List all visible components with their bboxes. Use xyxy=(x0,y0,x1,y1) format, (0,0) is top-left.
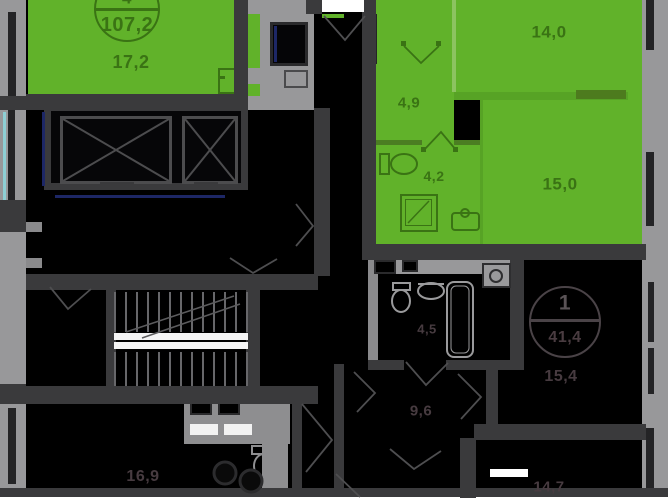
badge-divider xyxy=(95,8,159,11)
window-icon xyxy=(646,0,654,50)
room-second[interactable] xyxy=(482,92,642,244)
wall xyxy=(486,366,498,428)
landing-strip xyxy=(190,424,218,435)
room-label-other-main: 15,4 xyxy=(544,369,577,385)
room-label-second: 15,0 xyxy=(542,176,577,193)
window-glass xyxy=(3,112,6,200)
stair-landing xyxy=(114,333,248,340)
floor-plan: 4 107,2 1 41,4 17,2 14,0 4,9 4,2 15,0 15… xyxy=(0,0,672,500)
wall-stub xyxy=(26,222,42,232)
wall xyxy=(314,108,330,276)
window-icon xyxy=(8,110,15,202)
bath-wall xyxy=(376,140,422,145)
badge-total-area: 41,4 xyxy=(548,330,581,346)
room-label-middle: 9,6 xyxy=(410,404,432,419)
room-label-bottom-right: 14,7 xyxy=(533,480,564,495)
wall xyxy=(306,0,322,14)
badge-total-area: 107,2 xyxy=(101,15,154,35)
fridge-handle xyxy=(218,76,225,79)
elevator-accent xyxy=(42,112,45,186)
wall xyxy=(446,360,514,370)
wall-joint xyxy=(0,384,26,404)
stair-treads-lower xyxy=(114,352,248,386)
badge-divider xyxy=(531,319,599,322)
wall xyxy=(292,396,302,497)
wall xyxy=(0,488,668,497)
wall xyxy=(26,386,318,404)
wall xyxy=(362,0,376,260)
shaft-box-small xyxy=(284,70,308,88)
room-label-hall: 4,9 xyxy=(398,96,420,111)
room-label-bottom-left: 16,9 xyxy=(126,469,159,485)
window-icon xyxy=(646,428,654,490)
window-icon xyxy=(8,12,16,96)
bath-wall xyxy=(454,140,480,145)
green-pilaster xyxy=(246,14,260,68)
room-bedroom[interactable] xyxy=(454,0,642,92)
stair-treads-upper xyxy=(114,292,248,332)
window-icon xyxy=(646,152,654,226)
partition xyxy=(452,0,456,92)
window-icon xyxy=(648,348,654,394)
shaft-box xyxy=(402,260,418,272)
badge-room-count: 1 xyxy=(559,293,571,314)
elevator-cab-large xyxy=(60,116,172,184)
elevator-door xyxy=(100,182,134,190)
elevator-accent-bottom xyxy=(55,195,225,198)
partition-door-gap xyxy=(628,92,642,100)
room-hall[interactable] xyxy=(376,0,454,140)
entrance-door-leaf xyxy=(322,14,344,18)
wall xyxy=(510,258,524,370)
partition xyxy=(480,100,483,244)
wall-joint xyxy=(0,96,26,110)
wall xyxy=(234,0,248,94)
wall-joint xyxy=(0,200,26,232)
stair-landing xyxy=(114,342,248,349)
landing-strip xyxy=(224,424,252,435)
shaft-glass xyxy=(274,26,277,62)
utility-column xyxy=(262,396,288,497)
room-label-bath: 4,2 xyxy=(424,169,445,183)
wall xyxy=(368,360,404,370)
wall-stub xyxy=(26,258,42,268)
green-pilaster xyxy=(248,84,260,96)
elevator-door xyxy=(194,182,218,190)
shower-icon-inner xyxy=(405,199,432,226)
badge-room-count: 4 xyxy=(122,0,132,7)
wall xyxy=(474,424,646,440)
entry-gap xyxy=(322,0,364,12)
elevator-cab-small xyxy=(182,116,238,184)
furniture-shelf xyxy=(576,90,626,99)
wall xyxy=(362,244,646,260)
wall xyxy=(26,274,318,290)
room-label-bedroom: 14,0 xyxy=(531,24,566,41)
window-icon xyxy=(8,408,16,484)
wall xyxy=(334,364,344,497)
wall xyxy=(246,288,260,386)
door-threshold xyxy=(490,469,528,477)
room-label-living: 17,2 xyxy=(112,53,149,71)
shaft-box xyxy=(374,260,396,274)
window-icon xyxy=(648,282,654,342)
room-label-small-bath: 4,5 xyxy=(417,323,437,336)
